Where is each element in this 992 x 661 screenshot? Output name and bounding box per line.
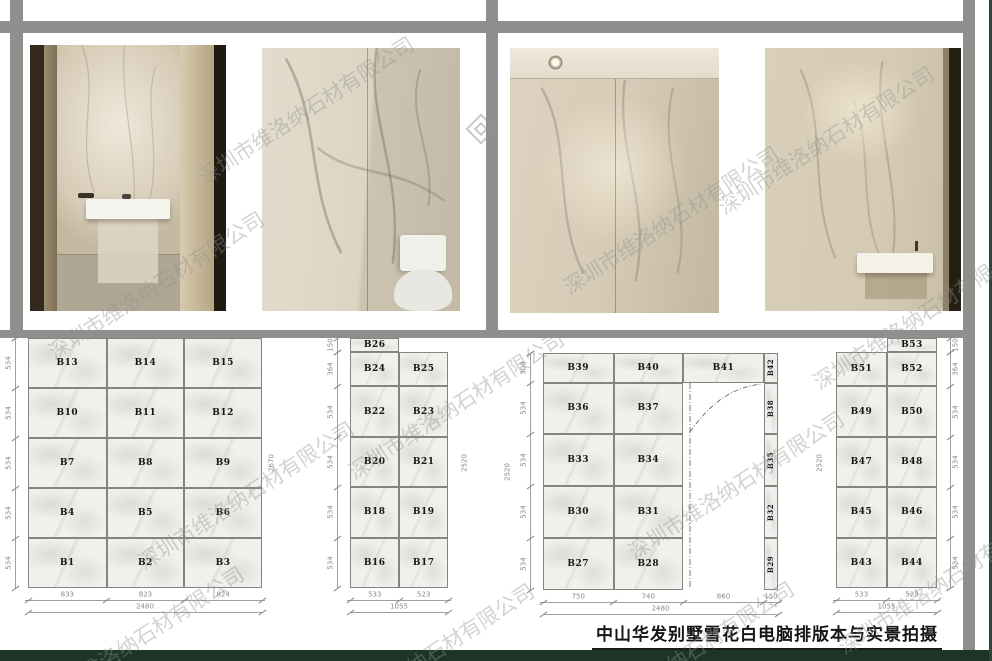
- tile-label: B45: [851, 507, 873, 517]
- dim-label: 150: [953, 338, 960, 351]
- tile-label: B28: [637, 559, 659, 569]
- dim-label: 304: [521, 361, 528, 374]
- dim-line: [28, 612, 262, 613]
- dim-tick: [933, 610, 941, 616]
- tile-label: B16: [364, 558, 386, 568]
- vanity-base: [865, 273, 927, 299]
- tile-B13: B13: [28, 338, 107, 388]
- tile-B47: B47: [836, 437, 887, 487]
- tile-B45: B45: [836, 487, 887, 537]
- tile-B42: B42: [764, 353, 778, 383]
- door-frame-right: [949, 48, 961, 311]
- dim-line: [25, 600, 265, 601]
- tile-label: B35: [766, 452, 775, 469]
- photo-marble-corner-ceiling: [510, 48, 719, 313]
- tile-B6: B6: [184, 488, 262, 538]
- tile-B24: B24: [350, 352, 399, 386]
- tile-label: B39: [567, 363, 589, 373]
- dim-label: 534: [953, 455, 960, 468]
- dim-label: 534: [6, 456, 13, 469]
- dim-label: 364: [953, 362, 960, 375]
- tile-label: B37: [637, 403, 659, 413]
- dim-label: 534: [953, 506, 960, 519]
- tile-B2: B2: [107, 538, 185, 588]
- photo-marble-wall-toilet: [262, 48, 460, 311]
- tile-B17: B17: [399, 538, 448, 588]
- tile-label: B25: [413, 364, 435, 374]
- tile-label: B47: [851, 457, 873, 467]
- dim-label: 534: [521, 454, 528, 467]
- tile-B35: B35: [764, 434, 778, 486]
- tile-B37: B37: [614, 383, 684, 435]
- tile-B25: B25: [399, 352, 448, 386]
- dim-line: [530, 353, 531, 590]
- tile-B19: B19: [399, 487, 448, 537]
- tile-B5: B5: [107, 488, 185, 538]
- tile-B46: B46: [887, 487, 937, 537]
- dim-label: 823: [139, 592, 152, 599]
- dim-label: 740: [642, 594, 655, 601]
- photo-bathroom-vanity-doorway: [30, 45, 226, 311]
- dim-label: 534: [328, 506, 335, 519]
- toilet-tank: [400, 235, 446, 271]
- tile-label: B20: [364, 457, 386, 467]
- dim-label: 534: [521, 506, 528, 519]
- basin-counter: [857, 253, 933, 273]
- tile-label: B6: [216, 508, 231, 518]
- tile-label: B17: [413, 558, 435, 568]
- tile-label: B7: [60, 458, 75, 468]
- dim-label: 534: [328, 455, 335, 468]
- tile-B9: B9: [184, 438, 262, 488]
- tile-label: B15: [212, 358, 234, 368]
- tile-B4: B4: [28, 488, 107, 538]
- dim-label: 2480: [652, 606, 670, 613]
- tile-label: B40: [637, 363, 659, 373]
- dim-line: [337, 338, 338, 588]
- door-frame-left: [30, 45, 44, 311]
- tile-label: B24: [364, 364, 386, 374]
- dim-tick: [774, 612, 782, 618]
- watermark-text: 深圳市维洛纳石材有限公司: [312, 576, 540, 661]
- dim-label: 523: [905, 592, 918, 599]
- tile-B40: B40: [614, 353, 684, 383]
- dim-label: 1055: [878, 604, 896, 611]
- tile-label: B48: [901, 457, 923, 467]
- dim-label: 523: [417, 592, 430, 599]
- tile-label: B3: [216, 558, 231, 568]
- tile-B33: B33: [543, 434, 614, 486]
- tile-B52: B52: [887, 352, 937, 386]
- sink-pedestal: [98, 219, 158, 283]
- tile-B38: B38: [764, 383, 778, 435]
- dim-label: 534: [6, 356, 13, 369]
- dim-label: 150: [764, 594, 777, 601]
- tile-B1: B1: [28, 538, 107, 588]
- dim-label: 534: [953, 405, 960, 418]
- tile-label: B49: [851, 407, 873, 417]
- sink: [86, 199, 170, 219]
- tile-B31: B31: [614, 486, 684, 538]
- ceiling: [510, 48, 719, 79]
- dim-label: 534: [521, 557, 528, 570]
- divider-bar-center: [486, 0, 498, 338]
- tile-label: B26: [364, 340, 386, 350]
- tile-label: B13: [56, 358, 78, 368]
- tile-B28: B28: [614, 538, 684, 590]
- tile-B32: B32: [764, 486, 778, 538]
- tile-label: B46: [901, 507, 923, 517]
- dim-label: 824: [216, 592, 229, 599]
- ceiling-light-icon: [548, 55, 563, 70]
- tile-B50: B50: [887, 386, 937, 436]
- faucet-icon: [915, 241, 918, 251]
- tile-B20: B20: [350, 437, 399, 487]
- tile-label: B10: [56, 408, 78, 418]
- divider-bar-left: [10, 0, 23, 338]
- dim-label: 534: [328, 405, 335, 418]
- dim-line: [543, 614, 778, 615]
- tile-B44: B44: [887, 538, 937, 588]
- tile-label: B18: [364, 507, 386, 517]
- tile-label: B22: [364, 407, 386, 417]
- photo-marble-wall-basin: [765, 48, 961, 311]
- tile-label: B27: [567, 559, 589, 569]
- door-frame-right: [214, 45, 226, 311]
- footer-bar: [0, 650, 992, 661]
- stone-layout-sheet: B13B14B15B10B11B12B7B8B9B4B5B6B1B2B38338…: [0, 0, 992, 661]
- tile-label: B32: [766, 504, 775, 521]
- tile-B16: B16: [350, 538, 399, 588]
- tile-label: B21: [413, 457, 435, 467]
- light-glow: [800, 59, 918, 164]
- tile-B41: B41: [683, 353, 764, 383]
- dim-label: 533: [855, 592, 868, 599]
- tile-B10: B10: [28, 388, 107, 438]
- tile-label: B34: [637, 455, 659, 465]
- tile-label: B8: [138, 458, 153, 468]
- tile-label: B30: [567, 507, 589, 517]
- dim-label: 534: [953, 556, 960, 569]
- tile-B11: B11: [107, 388, 185, 438]
- tile-B8: B8: [107, 438, 185, 488]
- toiletries: [78, 193, 94, 198]
- tile-B18: B18: [350, 487, 399, 537]
- dim-line: [15, 338, 16, 588]
- faucet-icon: [122, 194, 131, 199]
- tile-label: B12: [212, 408, 234, 418]
- tile-label: B52: [901, 364, 923, 374]
- tile-B21: B21: [399, 437, 448, 487]
- dim-label: 750: [572, 594, 585, 601]
- dim-label: 1055: [390, 604, 408, 611]
- dim-label: 534: [6, 506, 13, 519]
- dim-label: 534: [521, 402, 528, 415]
- dim-label: 533: [368, 592, 381, 599]
- dim-label: 860: [717, 594, 730, 601]
- dim-label: 534: [6, 556, 13, 569]
- tile-label: B41: [713, 363, 735, 373]
- tile-B26: B26: [350, 338, 399, 352]
- tile-B29: B29: [764, 538, 778, 590]
- tile-B51: B51: [836, 352, 887, 386]
- tile-label: B11: [135, 408, 157, 418]
- dim-label: 534: [6, 406, 13, 419]
- tile-label: B31: [637, 507, 659, 517]
- wall-corner-line: [615, 78, 616, 313]
- tile-B7: B7: [28, 438, 107, 488]
- tile-label: B1: [60, 558, 75, 568]
- dim-label: 2520: [817, 454, 824, 472]
- tile-B12: B12: [184, 388, 262, 438]
- tile-label: B19: [413, 507, 435, 517]
- dim-label: 364: [328, 362, 335, 375]
- tile-label: B9: [216, 458, 231, 468]
- dim-line: [836, 612, 937, 613]
- dim-label: 534: [328, 556, 335, 569]
- dim-tick: [258, 610, 266, 616]
- tile-label: B42: [766, 359, 775, 376]
- tile-label: B53: [901, 340, 923, 350]
- tile-label: B33: [567, 455, 589, 465]
- door-panel: [180, 45, 214, 311]
- tile-label: B23: [413, 407, 435, 417]
- dim-label: 150: [328, 338, 335, 351]
- tile-B23: B23: [399, 386, 448, 436]
- dim-label: 2520: [462, 454, 469, 472]
- tile-label: B2: [138, 558, 153, 568]
- divider-bar-right: [963, 0, 975, 650]
- door-jamb: [44, 45, 57, 311]
- tile-label: B14: [135, 358, 157, 368]
- tile-B36: B36: [543, 383, 614, 435]
- tile-label: B51: [851, 364, 873, 374]
- sheet-title: 中山华发别墅雪花白电脑排版本与实景拍摄: [592, 620, 942, 650]
- dim-line: [540, 602, 781, 603]
- wall-corner-line: [367, 48, 368, 311]
- toilet-bowl: [394, 269, 452, 311]
- tile-B48: B48: [887, 437, 937, 487]
- tile-label: B4: [60, 508, 75, 518]
- tile-B14: B14: [107, 338, 185, 388]
- tile-label: B50: [901, 407, 923, 417]
- dim-label: 2480: [136, 604, 154, 611]
- tile-B34: B34: [614, 434, 684, 486]
- tile-label: B38: [766, 400, 775, 417]
- tile-B53: B53: [887, 338, 937, 352]
- tile-B27: B27: [543, 538, 614, 590]
- tile-label: B36: [567, 403, 589, 413]
- tile-B15: B15: [184, 338, 262, 388]
- tile-B30: B30: [543, 486, 614, 538]
- dim-label: 2520: [505, 463, 512, 481]
- tile-B39: B39: [543, 353, 614, 383]
- tile-label: B43: [851, 558, 873, 568]
- tile-B3: B3: [184, 538, 262, 588]
- tile-label: B29: [766, 555, 775, 572]
- dim-label: 2670: [269, 454, 276, 472]
- tile-B43: B43: [836, 538, 887, 588]
- tile-label: B5: [138, 508, 153, 518]
- dim-tick: [444, 610, 452, 616]
- dim-label: 833: [61, 592, 74, 599]
- tile-B22: B22: [350, 386, 399, 436]
- tile-label: B44: [901, 558, 923, 568]
- tile-B49: B49: [836, 386, 887, 436]
- dim-line: [350, 612, 448, 613]
